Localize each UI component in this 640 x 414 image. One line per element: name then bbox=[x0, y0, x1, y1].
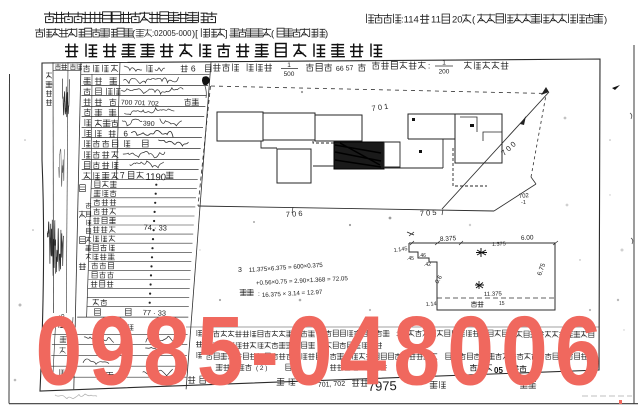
svg-text:.46: .46 bbox=[419, 253, 426, 259]
svg-text:7: 7 bbox=[119, 170, 125, 180]
svg-text:]: ] bbox=[225, 29, 228, 40]
svg-text:8.375: 8.375 bbox=[440, 235, 457, 243]
svg-text:390: 390 bbox=[143, 121, 155, 129]
svg-text:): ) bbox=[604, 15, 607, 26]
svg-text::02005-000: :02005-000 bbox=[152, 29, 192, 38]
svg-text:11: 11 bbox=[431, 15, 441, 26]
svg-text:0985-048006: 0985-048006 bbox=[36, 296, 609, 406]
svg-text::114: :114 bbox=[401, 15, 419, 26]
svg-text:500: 500 bbox=[284, 71, 295, 78]
svg-text:1: 1 bbox=[442, 60, 446, 67]
svg-text:)[: )[ bbox=[192, 29, 198, 40]
svg-text::: : bbox=[428, 62, 430, 71]
svg-text:1: 1 bbox=[287, 62, 291, 69]
svg-text:3: 3 bbox=[238, 267, 242, 274]
svg-text:7 0 5: 7 0 5 bbox=[420, 208, 437, 218]
svg-text:200: 200 bbox=[439, 69, 450, 76]
svg-text:1190: 1190 bbox=[145, 172, 166, 184]
svg-text:.42: .42 bbox=[424, 262, 431, 268]
svg-text:702: 702 bbox=[519, 193, 530, 200]
svg-text:6.00: 6.00 bbox=[521, 234, 534, 242]
svg-text:66 57: 66 57 bbox=[336, 65, 354, 73]
svg-text:7 0 6: 7 0 6 bbox=[286, 209, 303, 219]
svg-text:-1: -1 bbox=[521, 200, 526, 206]
svg-text:74 · 33: 74 · 33 bbox=[143, 223, 167, 233]
svg-text:20: 20 bbox=[452, 15, 463, 26]
svg-text:.45: .45 bbox=[407, 256, 414, 262]
svg-text:1.375: 1.375 bbox=[492, 241, 506, 248]
svg-text:6: 6 bbox=[191, 63, 196, 73]
svg-text:700 701 702: 700 701 702 bbox=[121, 99, 159, 107]
svg-text:): ) bbox=[325, 29, 328, 40]
